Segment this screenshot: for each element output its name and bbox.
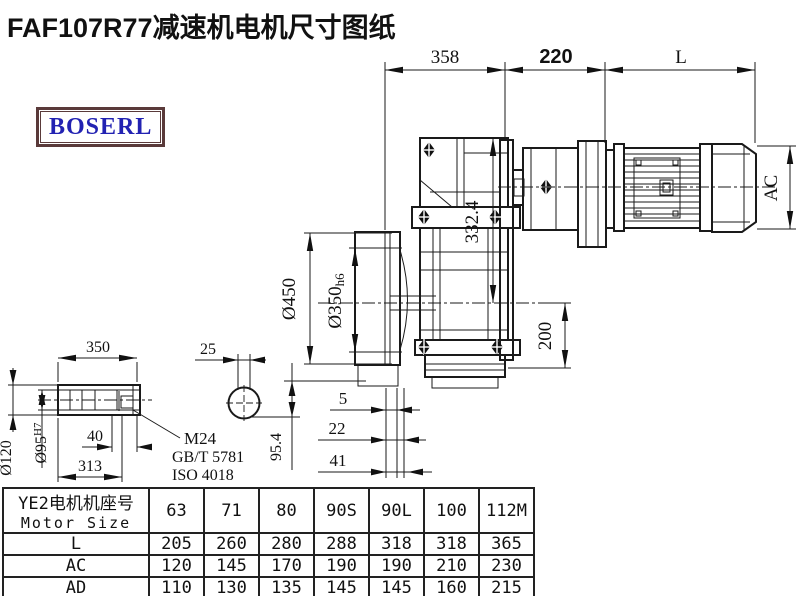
col-90L: 90L [369, 488, 424, 533]
row-label-AC: AC [3, 555, 149, 577]
dim-40-label: 40 [87, 428, 103, 445]
dim-25-label: 25 [200, 341, 216, 358]
output-flange [355, 232, 436, 386]
bolt-mark-icon [416, 209, 432, 225]
dim-AC-label: AC [761, 175, 782, 201]
dim-332-label: 332.4 [462, 200, 483, 243]
table-header-row: YE2电机机座号 Motor Size 63 71 80 90S 90L 100… [3, 488, 534, 533]
bolt-mark-icon [489, 339, 505, 355]
bolt-spec-callout: M24 GB/T 5781 ISO 4018 [172, 429, 244, 484]
dim-95-4: 95.4 [252, 363, 366, 470]
dim-AC: AC [757, 146, 796, 229]
col-63: 63 [149, 488, 204, 533]
dim-40: 40 [82, 416, 152, 452]
dim-5: 5 [330, 389, 420, 413]
dim-450-label: Ø450 [279, 278, 300, 320]
dim-22-label: 22 [329, 419, 346, 438]
table-row-AC: AC 120 145 170 190 190 210 230 [3, 555, 534, 577]
dim-200-label: 200 [535, 322, 556, 351]
col-112M: 112M [479, 488, 534, 533]
motor-fins [624, 154, 700, 221]
dim-313-label: 313 [78, 458, 102, 475]
dim-350h6-label: Ø350h6 [325, 273, 347, 329]
dim-358-label: 358 [431, 47, 460, 68]
table-row-AD: AD 110 130 135 145 145 160 215 [3, 577, 534, 596]
col-90S: 90S [314, 488, 369, 533]
dim-5-label: 5 [339, 389, 348, 408]
drawing-page: FAF107R77减速机电机尺寸图纸 BOSERL 358 [0, 0, 800, 596]
bolt-spec-m24: M24 [184, 429, 217, 448]
dim-120-label: Ø120 [0, 440, 15, 476]
gearbox-body [386, 138, 520, 478]
table-header-motor-size: YE2电机机座号 Motor Size [3, 488, 149, 533]
dim-22: 22 [318, 419, 426, 443]
dim-95-4-label: 95.4 [268, 433, 285, 461]
centerlines [38, 187, 778, 421]
col-80: 80 [259, 488, 314, 533]
technical-drawing: 358 220 L AC [0, 0, 800, 487]
dim-95h7: Ø95H7 [32, 390, 58, 468]
motor-size-table: YE2电机机座号 Motor Size 63 71 80 90S 90L 100… [2, 487, 535, 596]
bolt-mark-icon [416, 339, 432, 355]
dim-41: 41 [318, 451, 432, 475]
retaining-bolt [121, 396, 133, 408]
dim-L: L [605, 47, 755, 143]
dim-220: 220 [505, 46, 605, 143]
col-71: 71 [204, 488, 259, 533]
motor [606, 144, 756, 232]
col-100: 100 [424, 488, 479, 533]
dim-350-sleeve: 350 [58, 339, 137, 382]
dim-200: 200 [508, 303, 571, 368]
fan-cover [712, 144, 756, 232]
dim-L-label: L [675, 47, 687, 68]
bolt-spec-iso: ISO 4018 [172, 467, 234, 484]
sleeve-detail [58, 385, 180, 438]
shaft-end-view: 25 [195, 341, 266, 419]
bolt-mark-icon [421, 142, 437, 158]
dim-95h7-label: Ø95H7 [32, 422, 50, 464]
row-label-L: L [3, 533, 149, 555]
row-label-AD: AD [3, 577, 149, 596]
table-row-L: L 205 260 280 288 318 318 365 [3, 533, 534, 555]
bolt-spec-gbt: GB/T 5781 [172, 449, 244, 466]
dim-220-label: 220 [539, 46, 572, 68]
input-adapter [513, 141, 606, 247]
dim-41-label: 41 [330, 451, 347, 470]
motor-nameplate [660, 180, 673, 195]
dim-350-label: 350 [86, 339, 110, 356]
